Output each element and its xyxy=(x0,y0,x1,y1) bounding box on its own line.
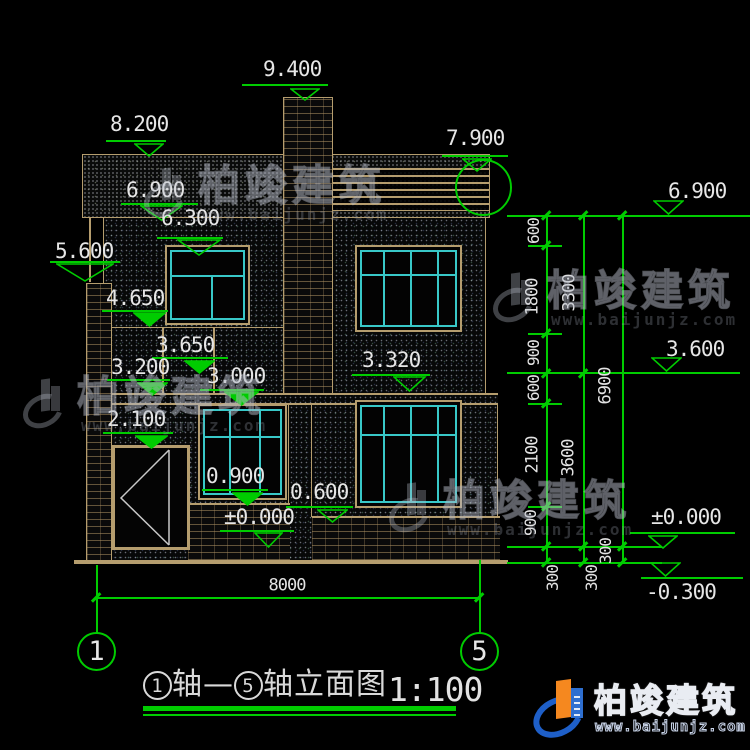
dimension-label: 3600 xyxy=(561,440,578,477)
elevation-value: 4.650 xyxy=(106,288,164,309)
logo-building-blue xyxy=(571,688,583,718)
window-2f-right-glass xyxy=(360,250,457,327)
elevation-value: 3.600 xyxy=(666,339,724,360)
elevation-value: 0.600 xyxy=(290,482,348,503)
elevation-triangle-icon xyxy=(650,562,681,577)
elevation-value: 3.000 xyxy=(207,366,265,387)
window-transom xyxy=(203,436,282,438)
window-transom xyxy=(170,275,245,277)
logo-url-text: www.baijunjz.com xyxy=(595,720,746,734)
elevation-marker-line xyxy=(507,372,740,374)
elevation-value: 5.600 xyxy=(55,241,113,262)
axis-bubble-1: 1 xyxy=(77,632,116,671)
elevation-value: 9.400 xyxy=(263,59,321,80)
elevation-value: -0.300 xyxy=(646,582,716,603)
elevation-value: 6.900 xyxy=(668,181,726,202)
dimension-label: 3300 xyxy=(562,275,579,312)
logo-mark-icon xyxy=(532,678,590,742)
dimension-label: 8000 xyxy=(269,578,306,595)
balcony-parapet-line xyxy=(103,327,283,328)
elevation-marker-line xyxy=(630,532,735,534)
window-2f-left-glass xyxy=(170,250,245,320)
title-axis-end-circle: 5 xyxy=(234,671,263,700)
elevation-marker-line xyxy=(641,577,743,579)
elevation-marker-line xyxy=(507,215,750,217)
watermark-url-text: www.baijunjz.com xyxy=(551,312,737,328)
elevation-triangle-icon xyxy=(317,508,348,522)
ground-line xyxy=(74,560,508,564)
elevation-triangle-icon xyxy=(648,534,678,548)
window-1f-right-glass xyxy=(360,405,457,503)
window-mullion xyxy=(383,406,385,502)
elevation-triangle-icon xyxy=(134,142,164,156)
window-mullion xyxy=(437,251,439,326)
logo-brand-text: 柏竣建筑 xyxy=(594,684,738,717)
dimension-line xyxy=(583,215,585,562)
window-transom xyxy=(360,434,457,436)
window-1f-right xyxy=(355,400,462,508)
dimension-label: 600 xyxy=(526,375,542,401)
elevation-value: 3.650 xyxy=(156,335,214,356)
chimney xyxy=(283,97,333,395)
elevation-value: 6.900 xyxy=(126,180,184,201)
logo-building-orange xyxy=(556,679,571,719)
axis-number: 5 xyxy=(471,638,487,665)
elevation-triangle-icon xyxy=(224,391,259,406)
elevation-triangle-icon xyxy=(56,263,114,282)
window-2f-right xyxy=(355,245,462,332)
elevation-triangle-icon xyxy=(135,434,168,448)
window-mullion xyxy=(437,406,439,502)
window-mullion xyxy=(410,251,412,326)
elevation-value: 7.900 xyxy=(446,128,504,149)
elevation-triangle-icon xyxy=(232,491,263,505)
watermark-logo-icon xyxy=(22,378,72,434)
dimension-label: 6900 xyxy=(598,368,615,405)
title-suffix: 轴立面图 xyxy=(263,667,387,702)
window-2f-left xyxy=(165,245,250,325)
drawing-title: 1轴—5轴立面图 xyxy=(143,668,387,701)
dimension-label: 300 xyxy=(545,565,561,591)
drawing-scale: 1:100 xyxy=(388,673,482,706)
detail-callout-circle xyxy=(455,159,512,216)
stone-base-right xyxy=(312,516,500,560)
elevation-value: 3.200 xyxy=(111,357,169,378)
elevation-value: 2.100 xyxy=(107,409,165,430)
title-axis-start-circle: 1 xyxy=(143,671,172,700)
dimension-line xyxy=(546,215,548,562)
elevation-triangle-icon xyxy=(393,376,426,392)
elevation-value: 3.320 xyxy=(362,350,420,371)
dimension-label: 2100 xyxy=(525,437,542,474)
window-mullion xyxy=(410,406,412,502)
dimension-label: 300 xyxy=(584,565,600,591)
elevation-value: 0.900 xyxy=(206,466,264,487)
elevation-triangle-icon xyxy=(133,312,166,327)
dimension-label: 300 xyxy=(598,538,614,564)
window-mullion xyxy=(211,277,213,319)
dimension-label: 900 xyxy=(523,510,539,536)
elevation-triangle-icon xyxy=(254,532,283,548)
dimension-line xyxy=(622,215,624,562)
dimension-label: 1800 xyxy=(525,279,542,316)
window-mullion xyxy=(383,251,385,326)
title-axis-mid: 轴— xyxy=(172,667,234,702)
dimension-line xyxy=(143,714,456,716)
elevation-value: ±0.000 xyxy=(651,507,721,528)
axis-bubble-5: 5 xyxy=(460,632,499,671)
dimension-line xyxy=(96,598,98,633)
brand-logo: 柏竣建筑 www.baijunjz.com xyxy=(498,672,748,746)
entry-door xyxy=(112,445,190,550)
elevation-triangle-icon xyxy=(137,381,168,395)
elevation-triangle-icon xyxy=(177,239,221,256)
elevation-value: ±0.000 xyxy=(224,507,294,528)
elevation-value: 8.200 xyxy=(110,114,168,135)
cad-elevation-drawing: 1 5 1轴—5轴立面图 1:100 柏竣建筑 www.baijunjz.com… xyxy=(0,0,750,750)
elevation-triangle-icon xyxy=(290,86,320,99)
axis-number: 1 xyxy=(88,638,104,665)
dimension-line xyxy=(96,597,479,599)
dimension-label: 600 xyxy=(526,218,542,244)
dimension-label: 900 xyxy=(526,340,542,366)
window-transom xyxy=(360,274,457,276)
door-swing-icon xyxy=(115,448,187,547)
elevation-value: 6.300 xyxy=(161,208,219,229)
dimension-line xyxy=(479,598,481,633)
